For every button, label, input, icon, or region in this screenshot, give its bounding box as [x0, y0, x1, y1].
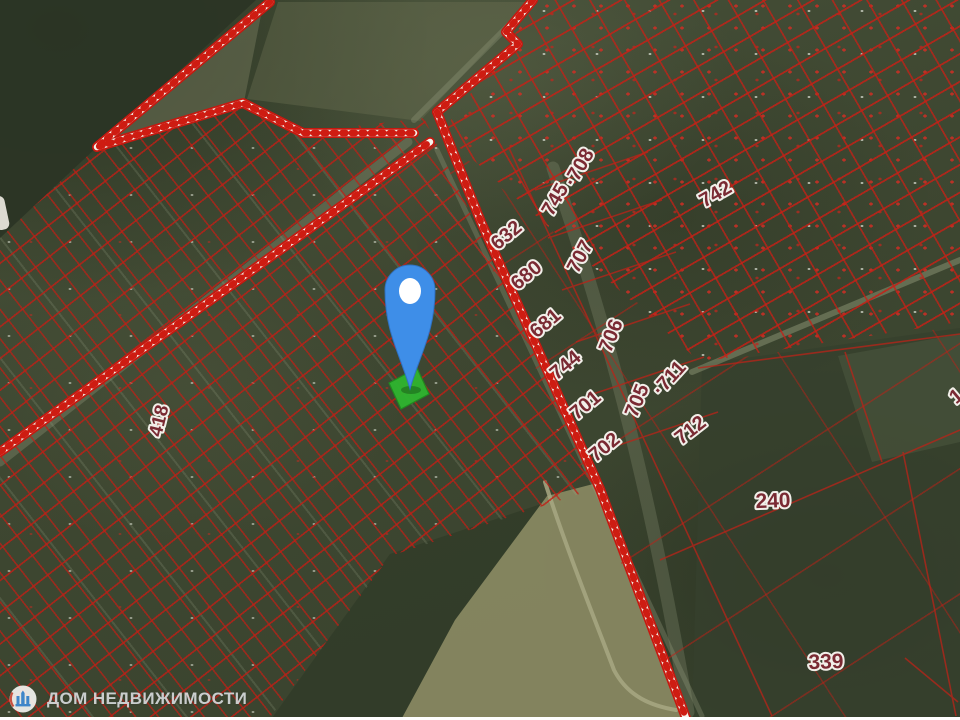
brand-watermark: ДОМ НЕДВИЖИМОСТИ	[8, 684, 247, 714]
building-logo-icon	[8, 684, 38, 714]
brand-name: ДОМ НЕДВИЖИМОСТИ	[47, 689, 247, 709]
partial-label-blob	[0, 195, 10, 231]
map-viewport[interactable]: 418632680681744701702745·708707706705·71…	[0, 0, 960, 720]
